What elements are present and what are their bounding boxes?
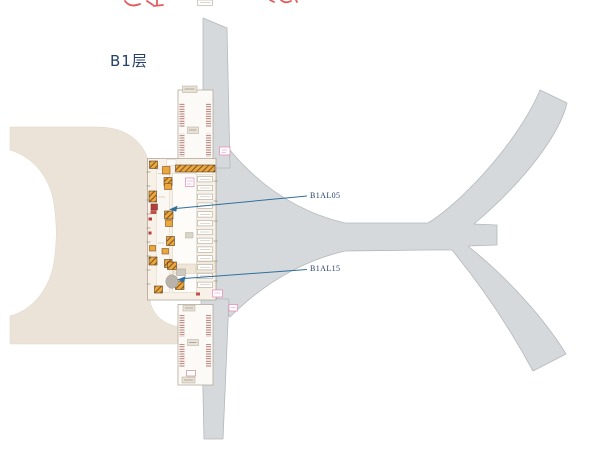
floor-plan-svg	[0, 0, 600, 455]
airside-concourse-shape	[216, 90, 567, 371]
floor-plan-canvas: B1层 B1AL05 B1AL15	[0, 0, 600, 455]
floor-label: B1层	[110, 50, 148, 71]
north-pier-building	[178, 86, 213, 163]
callout-label-b1al05: B1AL05	[310, 191, 340, 200]
callout-label-b1al15: B1AL15	[310, 264, 340, 273]
south-pier-building	[178, 305, 213, 386]
